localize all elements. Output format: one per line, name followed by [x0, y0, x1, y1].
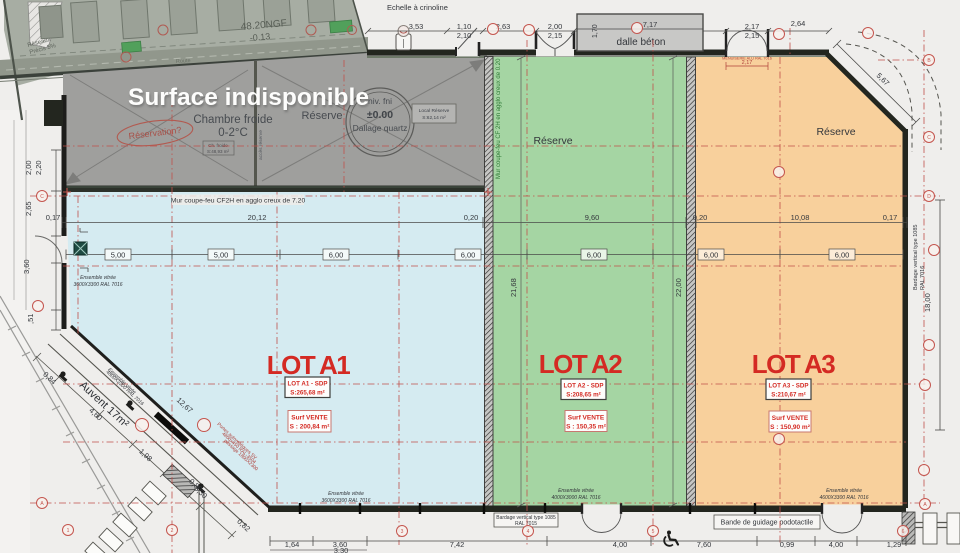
- svg-text:0-2°C: 0-2°C: [218, 127, 248, 139]
- svg-text:3: 3: [401, 529, 404, 535]
- svg-text:LOT A2 - SDP: LOT A2 - SDP: [564, 383, 604, 390]
- svg-text:Local Réserve: Local Réserve: [419, 108, 450, 114]
- svg-text:Surf VENTE: Surf VENTE: [291, 415, 328, 422]
- svg-text:Surf VENTE: Surf VENTE: [772, 415, 809, 422]
- svg-text:S:265,68 m²: S:265,68 m²: [290, 390, 324, 397]
- svg-text:7,60: 7,60: [697, 540, 712, 549]
- svg-text:1,29: 1,29: [887, 540, 902, 549]
- svg-text:Mur coupe-feu CF2H en agglo cr: Mur coupe-feu CF2H en agglo creux de 7.2…: [171, 198, 306, 205]
- svg-text:S:48,93 m²: S:48,93 m²: [207, 149, 230, 154]
- svg-text:Mur coupe-feu CF 2H en agglo c: Mur coupe-feu CF 2H en agglo creux de 0.…: [496, 58, 502, 179]
- svg-text:Echelle à crinoline: Echelle à crinoline: [387, 3, 448, 12]
- svg-text:6,00: 6,00: [461, 251, 476, 260]
- svg-text:S:62,14 m²: S:62,14 m²: [422, 115, 446, 121]
- svg-text:4000X3000 RAL 7016: 4000X3000 RAL 7016: [551, 495, 600, 501]
- svg-text:2,00: 2,00: [548, 22, 563, 31]
- svg-text:4,00: 4,00: [613, 540, 628, 549]
- svg-text:S:208,65 m²: S:208,65 m²: [566, 392, 600, 399]
- svg-text:6,00: 6,00: [835, 251, 850, 260]
- svg-text:2,10: 2,10: [457, 31, 472, 40]
- svg-text:2,20: 2,20: [34, 160, 43, 175]
- svg-text:7,42: 7,42: [450, 540, 465, 549]
- svg-text:LOT A2: LOT A2: [539, 349, 623, 379]
- svg-text:1,70: 1,70: [592, 24, 599, 38]
- svg-text:S : 150,90 m²: S : 150,90 m²: [770, 424, 811, 431]
- svg-text:2,15: 2,15: [745, 31, 760, 40]
- svg-text:5,00: 5,00: [214, 251, 229, 260]
- svg-text:S : 200,84 m²: S : 200,84 m²: [290, 424, 331, 431]
- svg-text:5,00: 5,00: [111, 251, 126, 260]
- svg-text:6,00: 6,00: [329, 251, 344, 260]
- svg-text:Réserve: Réserve: [533, 135, 572, 147]
- svg-text:4600X3300 RAL 7016: 4600X3300 RAL 7016: [819, 495, 868, 501]
- svg-text:3,53: 3,53: [409, 22, 424, 31]
- svg-text:3,30: 3,30: [334, 546, 349, 553]
- svg-text:Réserve: Réserve: [816, 126, 855, 138]
- svg-text:LOT A3: LOT A3: [752, 349, 836, 379]
- svg-text:3600X3300 RAL 7016: 3600X3300 RAL 7016: [73, 282, 122, 288]
- svg-text:C: C: [40, 194, 44, 200]
- svg-text:5: 5: [652, 529, 655, 535]
- svg-text:4: 4: [527, 529, 530, 535]
- svg-text:RAL 7016: RAL 7016: [920, 266, 926, 290]
- svg-text:7,17: 7,17: [643, 20, 658, 29]
- svg-text:2,64: 2,64: [791, 19, 806, 28]
- svg-text:Ensemble vitrée: Ensemble vitrée: [558, 488, 594, 494]
- svg-text:6,00: 6,00: [587, 251, 602, 260]
- svg-text:±0.00: ±0.00: [367, 109, 393, 121]
- svg-text:2,65: 2,65: [24, 201, 33, 216]
- svg-text:1,64: 1,64: [285, 540, 300, 549]
- svg-text:22,00: 22,00: [674, 278, 683, 297]
- svg-text:LOT A3 - SDP: LOT A3 - SDP: [769, 383, 809, 390]
- svg-text:Chambre froide: Chambre froide: [193, 114, 272, 126]
- svg-text:2,15: 2,15: [548, 31, 563, 40]
- svg-text:3600X3300 RAL 7016: 3600X3300 RAL 7016: [321, 498, 370, 504]
- svg-text:Réserve: Réserve: [302, 110, 343, 122]
- svg-text:1,10: 1,10: [457, 22, 472, 31]
- svg-text:D: D: [927, 194, 931, 200]
- svg-text:20,12: 20,12: [248, 213, 267, 222]
- svg-text:Ensemble vitrée: Ensemble vitrée: [826, 488, 862, 494]
- svg-text:-0.13: -0.13: [249, 31, 270, 43]
- svg-text:2,00: 2,00: [24, 160, 33, 175]
- svg-text:LOT A1 - SDP: LOT A1 - SDP: [288, 381, 328, 388]
- svg-text:9,60: 9,60: [585, 213, 600, 222]
- svg-text:18,00: 18,00: [923, 293, 932, 312]
- svg-text:6,00: 6,00: [704, 251, 719, 260]
- svg-text:2,17: 2,17: [745, 22, 760, 31]
- svg-text:0,20: 0,20: [464, 213, 479, 222]
- svg-text:Ensemble vitrée: Ensemble vitrée: [80, 275, 116, 281]
- svg-text:0,20: 0,20: [693, 213, 708, 222]
- svg-text:2,17: 2,17: [742, 60, 753, 66]
- svg-text:6: 6: [902, 529, 905, 535]
- svg-text:0,17: 0,17: [883, 213, 898, 222]
- svg-text:2: 2: [171, 528, 174, 534]
- svg-text:Ch. froide: Ch. froide: [208, 143, 228, 148]
- svg-text:S : 150,35 m²: S : 150,35 m²: [566, 424, 607, 431]
- svg-text:MENUISERIE ALU RAL 7016: MENUISERIE ALU RAL 7016: [722, 57, 772, 61]
- svg-text:LOT A1: LOT A1: [267, 350, 351, 380]
- svg-text:Bande de guidage podotactile: Bande de guidage podotactile: [721, 520, 814, 527]
- svg-text:0,17: 0,17: [46, 213, 61, 222]
- svg-text:4,00: 4,00: [829, 540, 844, 549]
- svg-text:0,99: 0,99: [780, 540, 795, 549]
- svg-text:Ensemble vitrée: Ensemble vitrée: [328, 491, 364, 497]
- svg-text:,51: ,51: [26, 314, 35, 324]
- svg-text:1: 1: [67, 528, 70, 534]
- svg-text:dalle béton: dalle béton: [617, 37, 666, 48]
- svg-text:Surf VENTE: Surf VENTE: [568, 415, 605, 422]
- svg-text:niv. fni: niv. fni: [368, 96, 392, 106]
- svg-text:C: C: [927, 135, 931, 141]
- svg-text:Bardage vertical type 1085: Bardage vertical type 1085: [913, 225, 919, 290]
- svg-text:Surface indisponible: Surface indisponible: [128, 84, 369, 111]
- svg-text:21,68: 21,68: [509, 278, 518, 297]
- svg-text:S:210,67 m²: S:210,67 m²: [771, 392, 805, 399]
- svg-text:10,08: 10,08: [791, 213, 810, 222]
- svg-text:3,60: 3,60: [22, 259, 31, 274]
- svg-text:accès réserve: accès réserve: [258, 130, 264, 160]
- svg-text:Dallage quartz: Dallage quartz: [353, 123, 408, 133]
